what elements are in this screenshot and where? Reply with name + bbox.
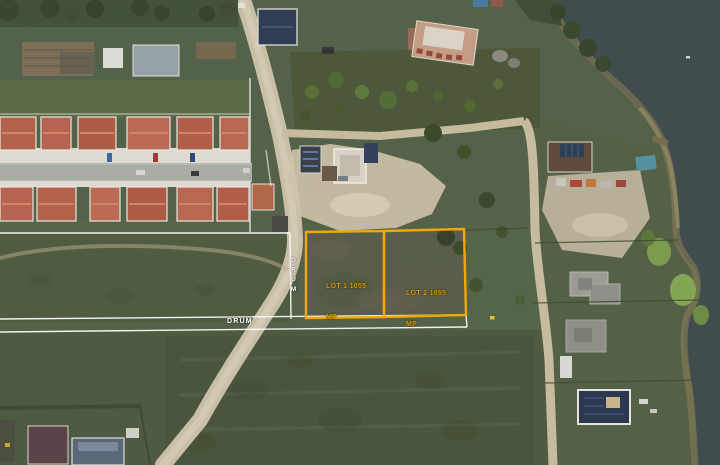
white-house	[103, 48, 123, 68]
navy-shed	[364, 143, 378, 163]
maroon-roof-house	[28, 426, 68, 464]
road-corridor-end	[466, 315, 467, 327]
car	[338, 176, 348, 181]
residential-street	[0, 163, 252, 182]
solar-house-bottom-right	[578, 390, 630, 424]
dark-shed	[272, 216, 288, 232]
sheds	[60, 52, 95, 74]
car-on-road	[238, 3, 245, 8]
dark-structures	[0, 420, 15, 462]
boundary-line-road-east	[290, 233, 291, 319]
aerial-scene	[0, 0, 720, 465]
dark-shed	[322, 47, 334, 54]
teal-shed	[635, 155, 656, 171]
brown-shed	[322, 166, 337, 181]
white-camper	[560, 356, 572, 378]
pond	[508, 58, 520, 68]
red-shed	[491, 0, 503, 7]
blue-shed	[473, 0, 488, 7]
concrete-house-2	[566, 320, 606, 352]
orange-roof-house	[252, 184, 274, 210]
gray-roof-house	[133, 45, 179, 76]
boat	[650, 409, 657, 413]
pond	[492, 50, 508, 62]
aerial-photo: LOT 1 1055 MP LOT 2 1055 MP DRUM DRUM	[0, 0, 720, 465]
boat	[639, 399, 648, 404]
yellow-marker-dot	[490, 316, 495, 320]
white-shed	[126, 428, 139, 438]
blue-gray-roof-house	[72, 438, 124, 465]
boat	[686, 56, 690, 59]
